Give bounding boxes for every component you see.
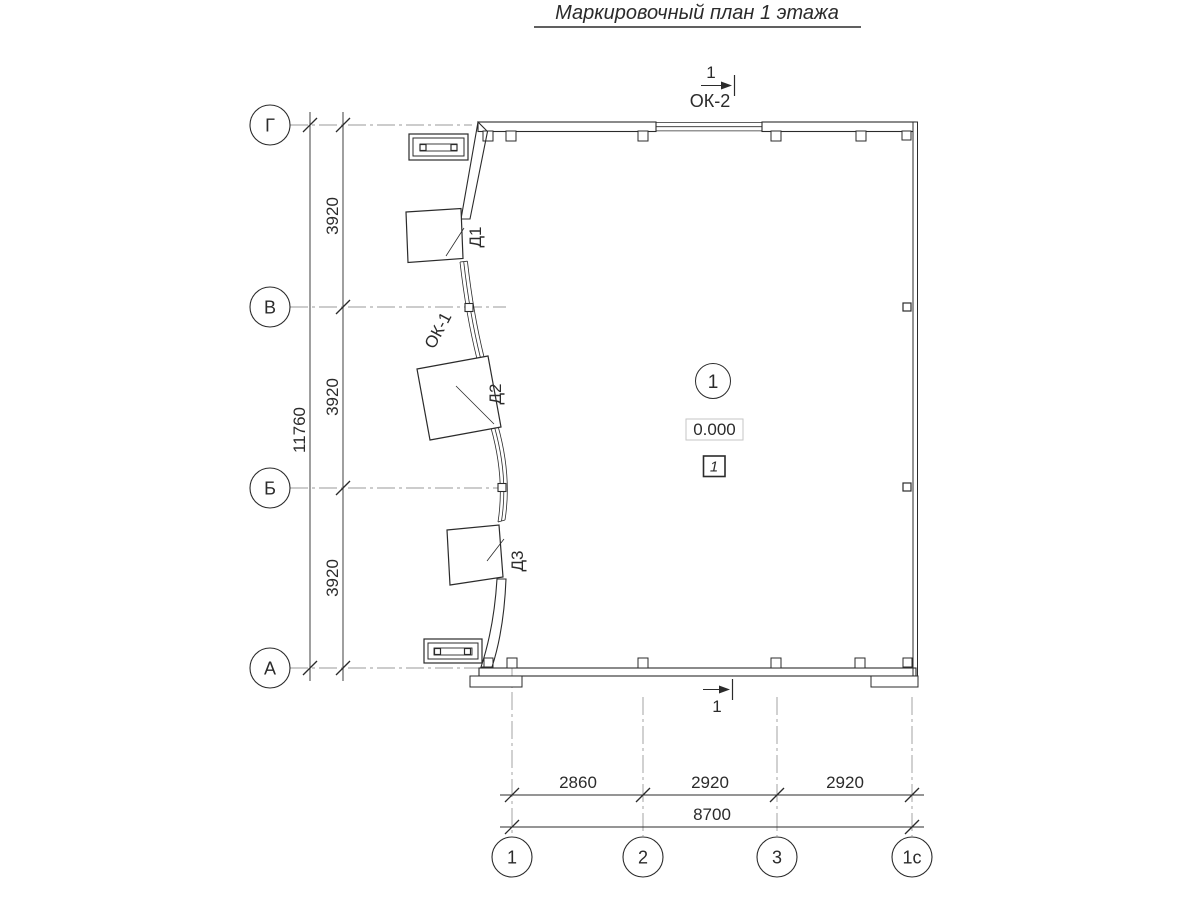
left-dimension-chain: 3920 3920 3920 11760 — [290, 112, 350, 681]
window-ok1-upper-band — [460, 261, 484, 359]
top-wall-left-segment — [478, 122, 656, 132]
axis-label-1c: 1с — [902, 848, 921, 868]
col-axes: 1 2 3 1с — [492, 663, 932, 877]
top-wall-right-segment — [762, 122, 915, 132]
band-column-v — [465, 304, 473, 312]
dim-row-1: 3920 — [323, 197, 342, 235]
right-wall — [913, 122, 918, 676]
axis-label-1: 1 — [507, 848, 517, 868]
door-d3-leaf — [447, 525, 504, 585]
bottom-wall — [479, 668, 916, 676]
footing-left — [470, 676, 522, 687]
section-bottom-number: 1 — [712, 697, 721, 716]
niche-detail-top — [409, 134, 468, 160]
top-wall-pilasters — [483, 131, 911, 141]
window-ok2 — [656, 122, 762, 132]
bottom-wall-pilasters — [484, 658, 912, 668]
window-ok1-label: ОК-1 — [421, 309, 456, 352]
axis-label-b: Б — [264, 479, 276, 499]
niche-detail-bottom — [424, 639, 482, 663]
section-top-arrow — [721, 82, 732, 90]
bottom-dimension-chain: 2860 2920 2920 8700 — [500, 773, 924, 834]
drawing-sheet: Маркировочный план 1 этажа Г В Б А 3920 … — [0, 0, 1200, 900]
right-wall-column-b — [903, 483, 911, 491]
drawing-title: Маркировочный план 1 этажа — [534, 2, 861, 27]
floor-type-value: 1 — [710, 459, 718, 476]
axis-label-3: 3 — [772, 848, 782, 868]
building-walls — [406, 122, 918, 687]
dim-col-total: 8700 — [693, 805, 731, 824]
axis-label-g: Г — [265, 116, 275, 136]
dim-col-2: 2920 — [691, 773, 729, 792]
elevation-value: 0.000 — [693, 420, 736, 439]
axis-label-2: 2 — [638, 848, 648, 868]
dim-col-1: 2860 — [559, 773, 597, 792]
row-axes: Г В Б А — [250, 105, 556, 688]
footing-right — [871, 676, 918, 687]
room-number: 1 — [708, 372, 719, 393]
band-column-b — [498, 484, 506, 492]
right-wall-column-v — [903, 303, 911, 311]
window-ok1-lower-band — [491, 426, 507, 522]
section-mark-bottom: 1 — [703, 679, 733, 716]
section-bottom-arrow — [719, 686, 730, 694]
section-mark-top: 1 ОК-2 — [690, 63, 735, 111]
axis-label-a: А — [264, 659, 276, 679]
door-d1-leaf — [406, 209, 464, 263]
dim-row-2: 3920 — [323, 378, 342, 416]
room-annotations: 1 0.000 1 — [686, 364, 743, 477]
dim-col-3: 2920 — [826, 773, 864, 792]
door-d3-label: Д3 — [508, 551, 527, 572]
page-title: Маркировочный план 1 этажа — [555, 2, 839, 24]
axis-label-v: В — [264, 298, 276, 318]
dim-row-total: 11760 — [290, 407, 309, 453]
section-top-number: 1 — [706, 63, 715, 82]
window-ok2-label: ОК-2 — [690, 91, 731, 111]
door-d2-label: Д2 — [486, 384, 505, 405]
floor-plan-drawing: Маркировочный план 1 этажа Г В Б А 3920 … — [0, 0, 1200, 900]
dim-row-3: 3920 — [323, 559, 342, 597]
door-d1-label: Д1 — [466, 227, 485, 248]
left-wall-lower-segment — [481, 579, 506, 667]
